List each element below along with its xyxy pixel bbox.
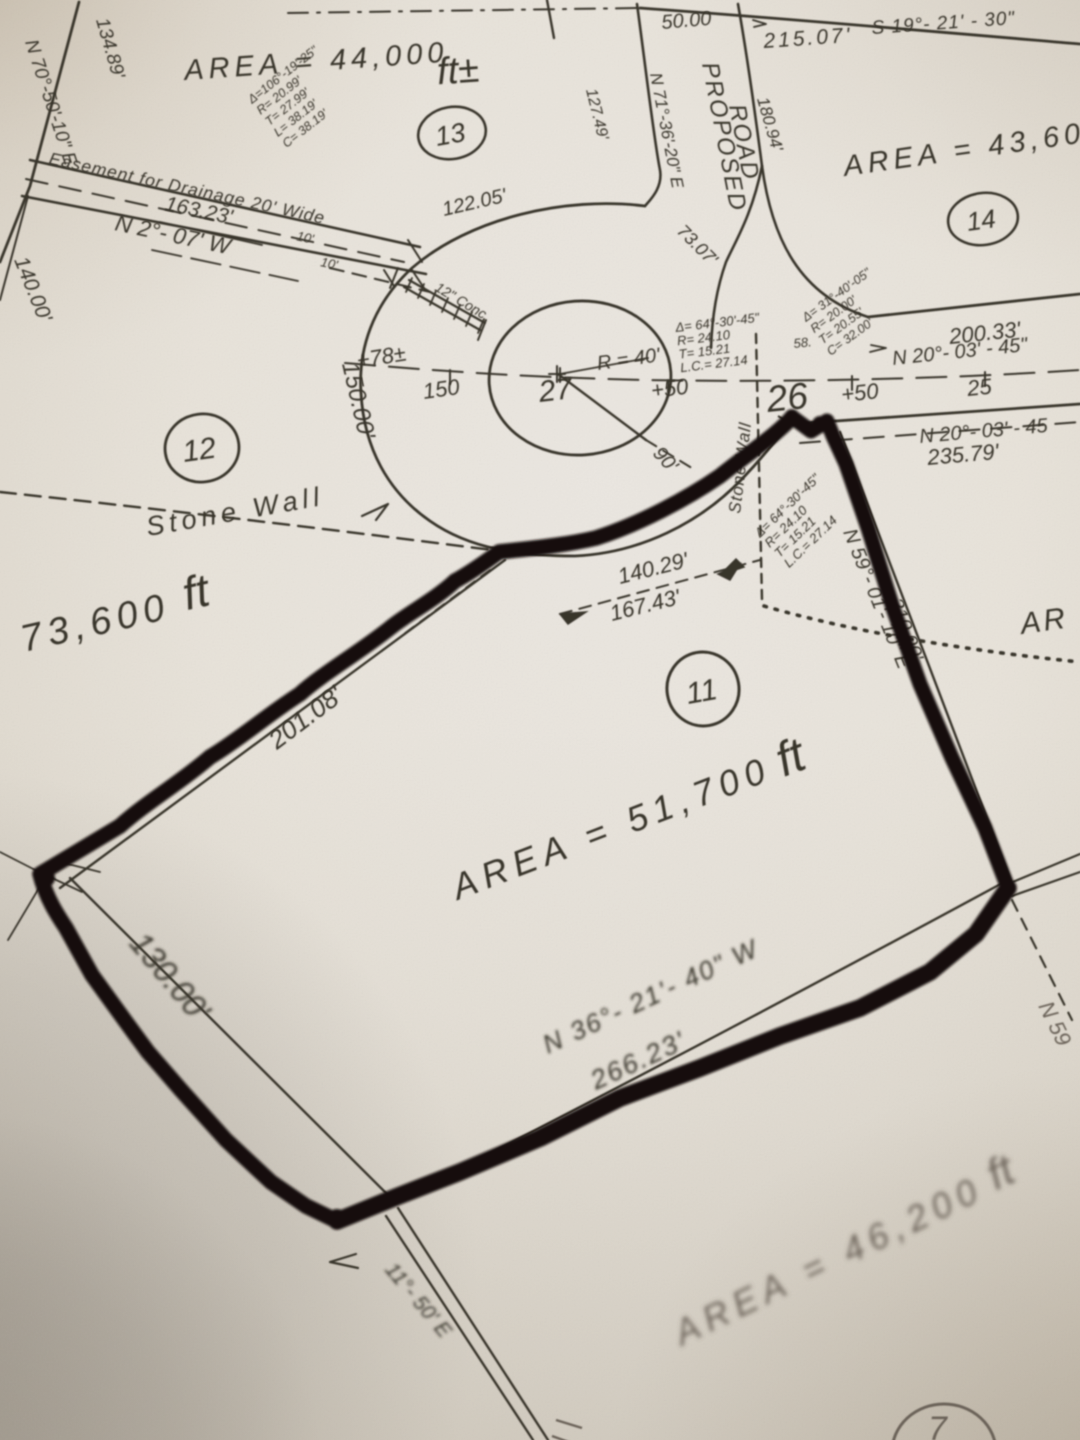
svg-text:150: 150 [421, 374, 462, 404]
svg-text:58.: 58. [793, 334, 813, 351]
svg-text:+50: +50 [840, 378, 880, 407]
svg-text:AR: AR [1016, 602, 1070, 642]
svg-text:ft±: ft± [436, 49, 481, 94]
svg-text:27: 27 [536, 372, 575, 409]
svg-text:50.00: 50.00 [661, 8, 713, 34]
svg-text:12: 12 [180, 432, 218, 469]
svg-text:25: 25 [965, 373, 994, 401]
svg-text:7: 7 [928, 1410, 948, 1440]
svg-text:+50: +50 [650, 374, 691, 403]
svg-text:13: 13 [433, 117, 468, 152]
svg-text:14: 14 [965, 203, 998, 237]
svg-text:11: 11 [683, 673, 719, 711]
